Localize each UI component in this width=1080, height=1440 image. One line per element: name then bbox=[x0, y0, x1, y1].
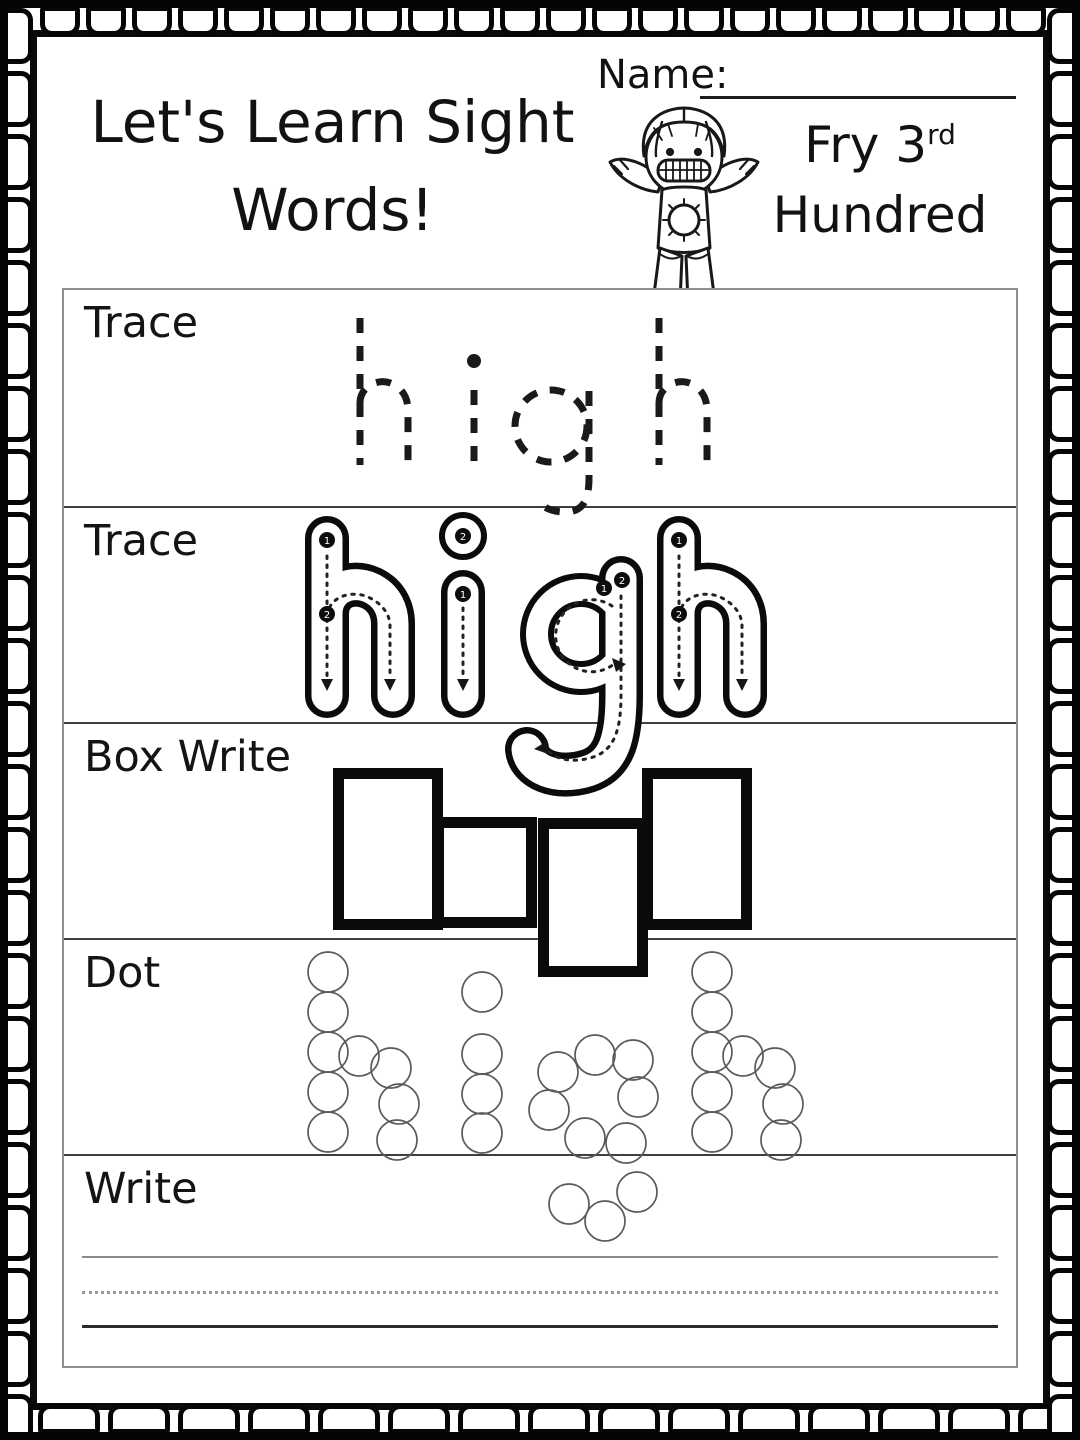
border-brick bbox=[1047, 827, 1077, 883]
border-brick bbox=[3, 386, 33, 442]
border-brick bbox=[1047, 386, 1077, 442]
border-brick bbox=[38, 1404, 100, 1434]
border-brick bbox=[776, 6, 816, 36]
row-label: Dot bbox=[84, 948, 160, 998]
border-brick bbox=[3, 1205, 33, 1261]
name-field: Name: bbox=[597, 52, 1017, 98]
border-brick bbox=[3, 512, 33, 568]
border-brick bbox=[1047, 890, 1077, 946]
row-trace-outline[interactable]: Trace bbox=[64, 506, 1016, 722]
border-brick bbox=[248, 1404, 310, 1434]
border-brick bbox=[3, 323, 33, 379]
border-brick bbox=[1047, 638, 1077, 694]
border-brick bbox=[388, 1404, 450, 1434]
border-brick bbox=[868, 6, 908, 36]
border-brick bbox=[1047, 701, 1077, 757]
border-brick bbox=[1047, 953, 1077, 1009]
border-brick bbox=[878, 1404, 940, 1434]
page-title-line1: Let's Learn Sight bbox=[60, 78, 605, 166]
border-brick bbox=[3, 575, 33, 631]
handwriting-line-middle-dotted[interactable] bbox=[82, 1291, 998, 1294]
row-write[interactable]: Write bbox=[64, 1154, 1016, 1370]
border-brick bbox=[1047, 260, 1077, 316]
border-brick bbox=[3, 953, 33, 1009]
row-box-write[interactable]: Box Write bbox=[64, 722, 1016, 938]
border-brick bbox=[3, 71, 33, 127]
border-brick bbox=[3, 1079, 33, 1135]
border-brick bbox=[3, 827, 33, 883]
row-label: Box Write bbox=[84, 732, 291, 782]
border-brick bbox=[1047, 449, 1077, 505]
border-brick bbox=[948, 1404, 1010, 1434]
border-brick bbox=[638, 6, 678, 36]
border-brick bbox=[108, 1404, 170, 1434]
border-brick bbox=[1047, 512, 1077, 568]
border-brick bbox=[3, 449, 33, 505]
worksheet-table: Trace Trace Box Write Dot Write bbox=[62, 288, 1018, 1368]
border-brick bbox=[3, 1331, 33, 1387]
border-brick bbox=[1047, 1205, 1077, 1261]
border-brick bbox=[3, 197, 33, 253]
row-label: Trace bbox=[84, 516, 198, 566]
border-brick bbox=[318, 1404, 380, 1434]
border-brick bbox=[1047, 8, 1077, 64]
border-brick bbox=[1047, 134, 1077, 190]
border-brick bbox=[3, 134, 33, 190]
border-brick bbox=[3, 638, 33, 694]
border-brick bbox=[3, 1016, 33, 1072]
name-label: Name: bbox=[597, 52, 728, 98]
page-title-line2: Words! bbox=[60, 166, 605, 254]
border-brick bbox=[86, 6, 126, 36]
border-brick bbox=[1047, 323, 1077, 379]
border-brick bbox=[224, 6, 264, 36]
border-brick bbox=[3, 1394, 33, 1440]
border-brick bbox=[1047, 1394, 1077, 1440]
border-brick bbox=[1047, 71, 1077, 127]
row-label: Write bbox=[84, 1164, 198, 1214]
border-brick bbox=[500, 6, 540, 36]
border-brick bbox=[730, 6, 770, 36]
border-brick bbox=[454, 6, 494, 36]
border-brick bbox=[1047, 1142, 1077, 1198]
border-brick bbox=[1047, 197, 1077, 253]
border-brick bbox=[546, 6, 586, 36]
girl-clipart bbox=[598, 96, 770, 292]
border-brick bbox=[738, 1404, 800, 1434]
border-brick bbox=[408, 6, 448, 36]
border-brick bbox=[592, 6, 632, 36]
series-label: Fry 3rd Hundred bbox=[742, 116, 1018, 244]
border-brick bbox=[178, 6, 218, 36]
page-title: Let's Learn Sight Words! bbox=[60, 78, 605, 254]
ordinal-suffix: rd bbox=[927, 118, 956, 151]
border-brick bbox=[1047, 575, 1077, 631]
row-dot[interactable]: Dot bbox=[64, 938, 1016, 1154]
border-brick bbox=[1047, 764, 1077, 820]
row-label: Trace bbox=[84, 298, 198, 348]
border-brick bbox=[598, 1404, 660, 1434]
border-brick bbox=[3, 1268, 33, 1324]
border-brick bbox=[960, 6, 1000, 36]
border-brick bbox=[914, 6, 954, 36]
border-brick bbox=[316, 6, 356, 36]
border-brick bbox=[270, 6, 310, 36]
border-brick bbox=[178, 1404, 240, 1434]
series-line2: Hundred bbox=[742, 186, 1018, 244]
border-brick bbox=[132, 6, 172, 36]
border-brick bbox=[668, 1404, 730, 1434]
border-brick bbox=[362, 6, 402, 36]
border-brick bbox=[40, 6, 80, 36]
border-brick bbox=[1047, 1016, 1077, 1072]
border-brick bbox=[3, 1142, 33, 1198]
border-brick bbox=[528, 1404, 590, 1434]
border-brick bbox=[3, 701, 33, 757]
row-trace-dashed[interactable]: Trace bbox=[64, 290, 1016, 506]
border-brick bbox=[822, 6, 862, 36]
handwriting-line-top[interactable] bbox=[82, 1256, 998, 1258]
border-brick bbox=[3, 260, 33, 316]
worksheet-page: Let's Learn Sight Words! Name: Fry 3rd H… bbox=[0, 0, 1080, 1440]
border-brick bbox=[3, 890, 33, 946]
border-brick bbox=[3, 8, 33, 64]
border-brick bbox=[808, 1404, 870, 1434]
border-brick bbox=[1047, 1331, 1077, 1387]
border-brick bbox=[684, 6, 724, 36]
border-brick bbox=[458, 1404, 520, 1434]
border-brick bbox=[1047, 1268, 1077, 1324]
border-brick bbox=[1047, 1079, 1077, 1135]
handwriting-line-bottom[interactable] bbox=[82, 1325, 998, 1328]
series-line1: Fry 3rd bbox=[742, 116, 1018, 174]
border-brick bbox=[1006, 6, 1046, 36]
border-brick bbox=[3, 764, 33, 820]
